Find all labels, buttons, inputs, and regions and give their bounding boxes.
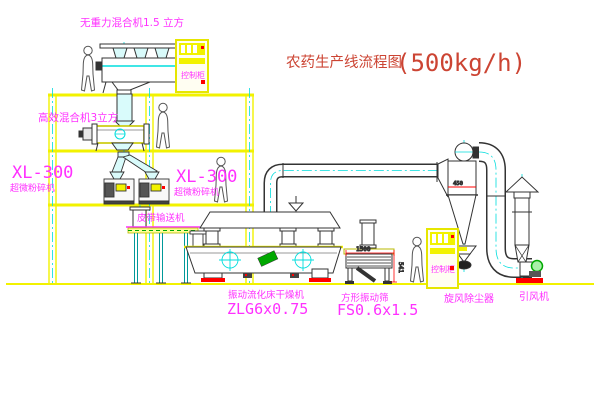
label-high-eff-mixer: 高效混合机3立方 [38, 111, 118, 124]
mill-left [104, 179, 134, 204]
induced-draft-fan [516, 261, 543, 284]
cyclone-inlet-expansion [438, 159, 448, 197]
label-fan: 引风机 [519, 290, 549, 303]
worker-floor2 [157, 103, 170, 148]
stack-rain-cap [506, 177, 538, 192]
fan-motor [532, 261, 543, 272]
label-mill-left-name: 超微粉碎机 [10, 182, 55, 194]
label-gravity-mixer: 无重力混合机1.5 立方 [80, 16, 184, 29]
cyclone-body [448, 161, 476, 195]
label-screen-model: FS0.6x1.5 [337, 301, 418, 319]
cad-canvas: 1500 541 450 [0, 0, 600, 403]
screen-height-dim: 541 [397, 262, 404, 273]
screen-discharge-spout [357, 268, 375, 281]
conveyor-legs [135, 233, 188, 283]
fan-base [516, 278, 543, 283]
screen-length-dim: 1500 [356, 246, 371, 253]
label-belt-conveyor: 皮带输送机 [137, 212, 185, 224]
gravity-free-mixer [96, 44, 186, 121]
diagram-title: 农药生产线流程图 [286, 54, 402, 71]
control-cabinet-top: 控制柜 [176, 40, 208, 92]
y-splitter-chute [110, 152, 159, 179]
label-cyclone: 旋风除尘器 [444, 292, 494, 305]
worker-roof [82, 46, 95, 91]
vibrating-screen: 1500 541 [344, 220, 404, 284]
label-mill-right-model: XL-300 [176, 167, 237, 187]
label-dryer-model: ZLG6x0.75 [227, 300, 308, 318]
dust-collection-drum [457, 261, 471, 269]
worker-ground [411, 237, 424, 282]
label-mill-right-name: 超微粉碎机 [174, 186, 219, 198]
high-efficiency-mixer [79, 121, 149, 151]
cabinet-top-label: 控制柜 [181, 70, 205, 80]
label-mill-left-model: XL-300 [12, 163, 73, 183]
roof-discharge-duct [117, 94, 132, 121]
hood-stubs [204, 228, 334, 247]
cyclone-dim: 450 [453, 181, 463, 187]
pesticide-line-flow-diagram: 1500 541 450 [0, 0, 600, 403]
control-cabinet-right: 控制柜 [427, 229, 458, 288]
dryer-hood [200, 212, 340, 228]
mill-right [139, 179, 169, 204]
diagram-capacity: (500kg/h) [396, 49, 526, 77]
